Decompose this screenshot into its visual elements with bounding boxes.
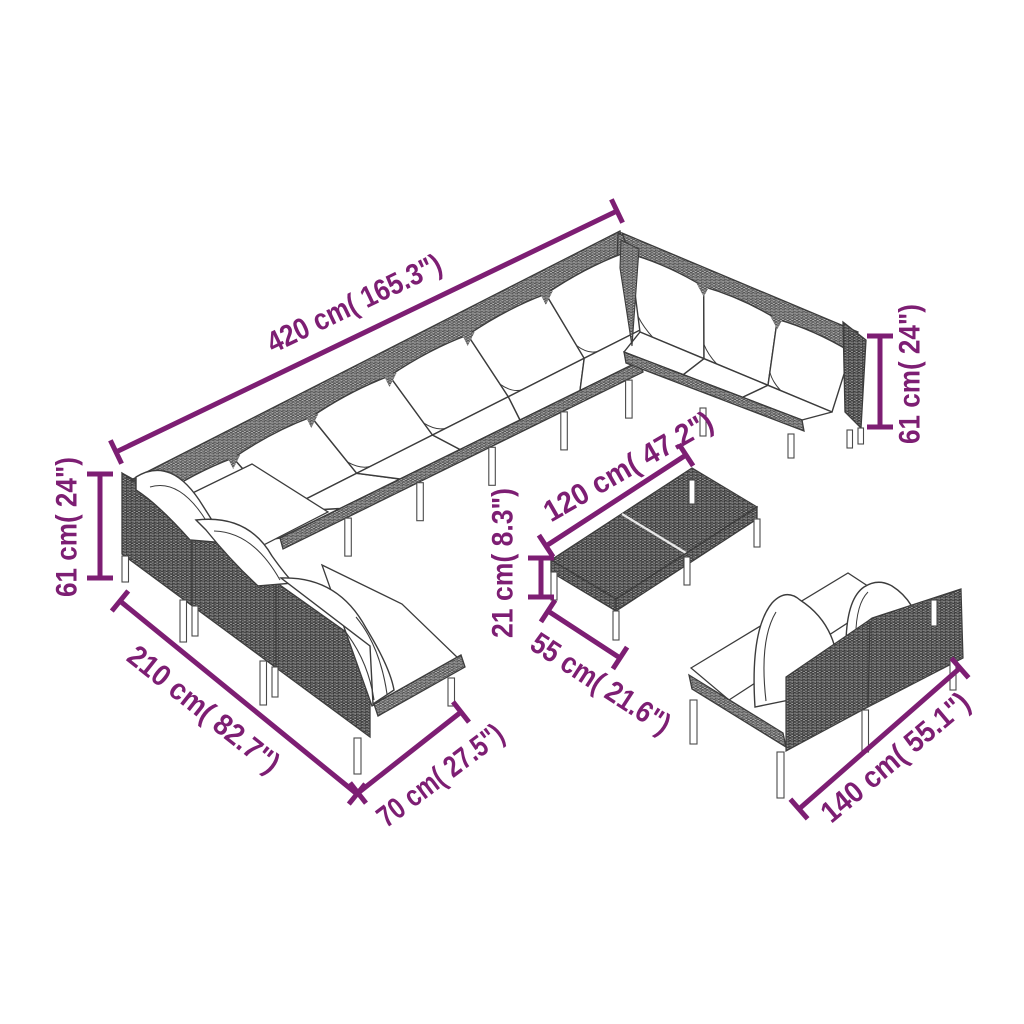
svg-text:61 cm( 24"): 61 cm( 24") <box>894 304 927 444</box>
svg-text:21 cm( 8.3"): 21 cm( 8.3") <box>487 488 520 638</box>
svg-text:61 cm( 24"): 61 cm( 24") <box>51 457 84 597</box>
